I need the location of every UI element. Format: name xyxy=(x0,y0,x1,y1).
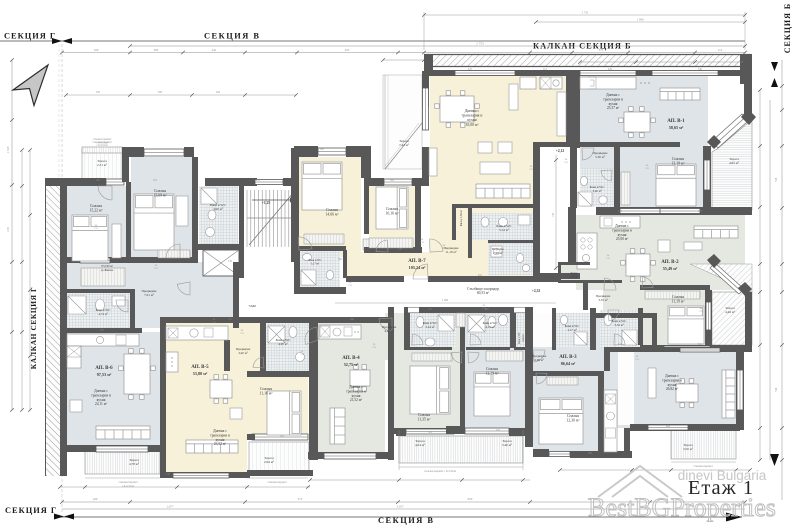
svg-text:кухня: кухня xyxy=(216,438,225,442)
svg-text:+2,52: +2,52 xyxy=(248,304,256,308)
svg-text:1 731: 1 731 xyxy=(581,11,589,15)
svg-text:стъклен парапет с h=110см: стъклен парапет с h=110см xyxy=(424,470,456,473)
svg-text:АП. B-5: АП. B-5 xyxy=(191,365,209,370)
svg-text:241: 241 xyxy=(212,48,217,52)
svg-text:кухня: кухня xyxy=(467,118,477,122)
svg-text:трапезария и: трапезария и xyxy=(346,389,366,393)
svg-text:стъклен парапет: стъклен парапет xyxy=(118,481,138,484)
svg-text:АП. B-3: АП. B-3 xyxy=(559,355,577,360)
svg-text:+1,25: +1,25 xyxy=(262,201,271,205)
svg-text:3.107: 3.107 xyxy=(396,505,404,509)
svg-text:58,65 м²: 58,65 м² xyxy=(669,125,684,130)
svg-text:1 396: 1 396 xyxy=(636,18,644,22)
svg-text:АП. B-7: АП. B-7 xyxy=(408,259,426,264)
svg-text:Спалня: Спалня xyxy=(260,387,272,391)
svg-text:СЕКЦИЯ Г: СЕКЦИЯ Г xyxy=(4,32,56,41)
svg-text:СЕКЦИЯ Г: СЕКЦИЯ Г xyxy=(5,506,57,515)
svg-text:стъклен парапет: стъклен парапет xyxy=(267,481,287,484)
svg-text:трапезария и: трапезария и xyxy=(91,393,111,397)
svg-text:Спалня: Спалня xyxy=(386,207,398,211)
svg-text:кухня: кухня xyxy=(609,102,618,106)
svg-text:Дневна с: Дневна с xyxy=(213,429,227,433)
svg-text:КАЛКАН СЕКЦИЯ Г: КАЛКАН СЕКЦИЯ Г xyxy=(29,287,38,370)
svg-text:1 753: 1 753 xyxy=(476,41,484,45)
svg-text:3,17 м²: 3,17 м² xyxy=(311,263,319,266)
svg-text:Дневна с: Дневна с xyxy=(349,385,363,389)
svg-text:трапезария и: трапезария и xyxy=(210,433,230,437)
svg-text:1 30: 1 30 xyxy=(6,227,10,233)
svg-text:АП. B-6: АП. B-6 xyxy=(95,366,113,371)
svg-text:202: 202 xyxy=(154,48,159,52)
svg-text:АП. B-2: АП. B-2 xyxy=(661,260,679,265)
svg-text:100: 100 xyxy=(94,48,99,52)
svg-text:373: 373 xyxy=(599,48,604,52)
svg-text:52,75 м²: 52,75 м² xyxy=(344,362,359,367)
svg-text:Дневна с: Дневна с xyxy=(94,389,108,393)
svg-text:+2,52: +2,52 xyxy=(532,289,541,293)
svg-text:105,24 м²: 105,24 м² xyxy=(409,265,426,270)
svg-text:1 335: 1 335 xyxy=(6,146,10,153)
svg-text:Спалня: Спалня xyxy=(418,413,430,417)
svg-text:трапезария и: трапезария и xyxy=(612,228,632,232)
svg-text:Спалня: Спалня xyxy=(154,189,166,193)
svg-text:740: 740 xyxy=(774,387,778,392)
svg-text:кухня: кухня xyxy=(618,233,627,237)
svg-text:кухня: кухня xyxy=(352,394,361,398)
svg-text:Спалня: Спалня xyxy=(567,414,579,418)
svg-text:трапезария и: трапезария и xyxy=(462,114,483,118)
svg-text:650: 650 xyxy=(468,497,473,501)
svg-text:Спалня: Спалня xyxy=(326,208,338,212)
svg-text:BestBGProperties: BestBGProperties xyxy=(588,493,776,522)
svg-text:Баня и WC: Баня и WC xyxy=(518,332,521,344)
svg-text:с h=110см: с h=110см xyxy=(96,144,108,147)
svg-text:745: 745 xyxy=(774,177,778,182)
svg-text:Дневна с: Дневна с xyxy=(606,93,620,97)
svg-text:86,64 м²: 86,64 м² xyxy=(561,361,576,366)
svg-text:53,80 м²: 53,80 м² xyxy=(193,371,208,376)
svg-text:425: 425 xyxy=(345,48,350,52)
svg-text:Дневна с: Дневна с xyxy=(465,109,480,113)
svg-text:Спалня: Спалня xyxy=(90,204,102,208)
svg-text:трапезария и: трапезария и xyxy=(662,378,682,382)
svg-text:АП. B-1: АП. B-1 xyxy=(667,119,685,124)
svg-text:с h=110см: с h=110см xyxy=(122,485,134,488)
svg-text:кухня: кухня xyxy=(668,383,677,387)
svg-text:АП. B-4: АП. B-4 xyxy=(342,356,360,361)
svg-text:1.677: 1.677 xyxy=(166,505,174,509)
svg-text:3,44 м²: 3,44 м² xyxy=(522,334,525,342)
svg-text:55,49 м²: 55,49 м² xyxy=(663,266,678,271)
svg-text:Килер 1,84 м²: Килер 1,84 м² xyxy=(460,210,463,226)
svg-text:Дневна с: Дневна с xyxy=(615,224,629,228)
svg-text:1,37 м²: 1,37 м² xyxy=(570,276,578,279)
svg-text:до Жкюна: до Жкюна xyxy=(101,269,114,272)
svg-text:СЕКЦИЯ В: СЕКЦИЯ В xyxy=(378,516,434,525)
svg-text:Спалня: Спалня xyxy=(672,157,684,161)
svg-text:+2,12: +2,12 xyxy=(556,149,565,153)
svg-text:97,53 м²: 97,53 м² xyxy=(97,372,112,377)
svg-text:СЕКЦИЯ Б: СЕКЦИЯ Б xyxy=(783,3,792,53)
svg-text:Дневна с: Дневна с xyxy=(665,374,679,378)
svg-text:97,0,90 м²: 97,0,90 м² xyxy=(101,265,113,268)
svg-text:572: 572 xyxy=(298,497,303,501)
svg-text:1 992: 1 992 xyxy=(442,299,449,302)
svg-text:100: 100 xyxy=(93,497,98,501)
svg-text:кухня: кухня xyxy=(97,398,106,402)
svg-text:СЕКЦИЯ В: СЕКЦИЯ В xyxy=(204,32,260,41)
svg-text:112: 112 xyxy=(718,48,723,52)
svg-text:трапезария и: трапезария и xyxy=(603,97,623,101)
svg-text:Спалня: Спалня xyxy=(672,295,684,299)
svg-text:Спалня: Спалня xyxy=(486,367,498,371)
